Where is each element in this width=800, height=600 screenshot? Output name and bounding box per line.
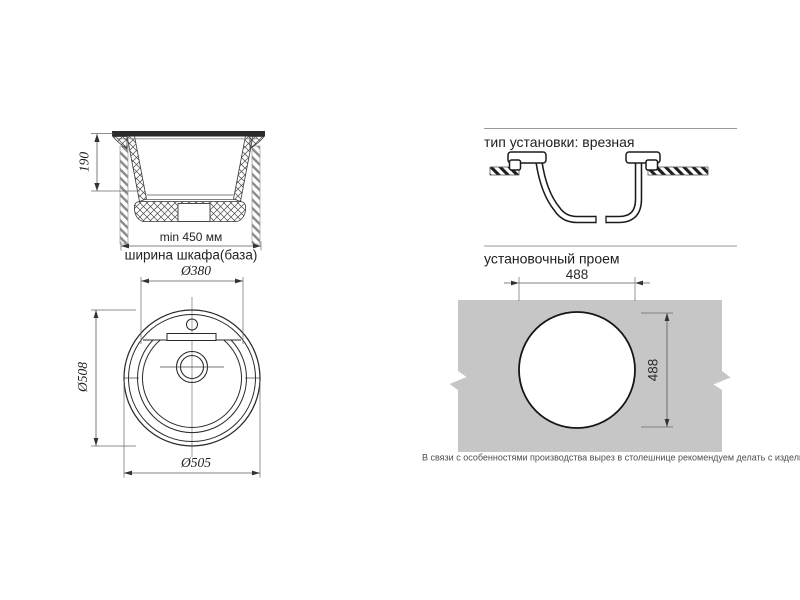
technical-drawing-canvas: 190 min 450 мм ширина шкафа(база) xyxy=(0,0,800,600)
bowl-diameter-label: Ø380 xyxy=(180,263,211,278)
top-view-plan: Ø380 Ø508 Ø505 xyxy=(75,263,260,478)
dimension-cutout-width: 488 xyxy=(504,267,650,301)
production-note: В связи с особенностями производства выр… xyxy=(422,453,800,463)
outer-diameter-bottom-label: Ø505 xyxy=(180,455,211,470)
profile-rim-left-foot xyxy=(510,160,521,170)
profile-right-wall-inner xyxy=(606,162,639,220)
cutout-section: установочный проем 488 488 В связи с осо… xyxy=(422,246,800,463)
depth-dimension-label: 190 xyxy=(77,152,92,173)
cutout-circle xyxy=(519,312,635,428)
cabinet-wall-right xyxy=(252,146,260,244)
installation-heading: тип установки: врезная xyxy=(484,134,635,150)
profile-left-wall-inner xyxy=(539,162,596,220)
installation-type-section: тип установки: врезная xyxy=(484,129,737,224)
cabinet-min-width-label: min 450 мм xyxy=(160,230,223,244)
cutout-heading: установочный проем xyxy=(484,251,620,267)
side-view-section: 190 min 450 мм ширина шкафа(база) xyxy=(77,131,266,263)
sink-profile-section xyxy=(508,152,660,223)
profile-rim-right-foot xyxy=(646,160,658,170)
sink-wall-left-section xyxy=(127,136,147,202)
dimension-cabinet-width: min 450 мм ширина шкафа(база) xyxy=(121,230,261,263)
cabinet-base-label: ширина шкафа(база) xyxy=(125,248,258,263)
drain-opening-section xyxy=(178,204,210,222)
cutout-width-label: 488 xyxy=(566,267,589,282)
cabinet-wall-left xyxy=(120,146,128,244)
cutout-height-label: 488 xyxy=(646,359,661,382)
outer-diameter-side-label: Ø508 xyxy=(75,362,90,393)
overflow-slot xyxy=(167,334,216,341)
sink-rim-bar xyxy=(112,131,265,137)
sink-installation-diagram: 190 min 450 мм ширина шкафа(база) xyxy=(0,0,800,600)
profile-gap-endcaps xyxy=(596,216,606,223)
